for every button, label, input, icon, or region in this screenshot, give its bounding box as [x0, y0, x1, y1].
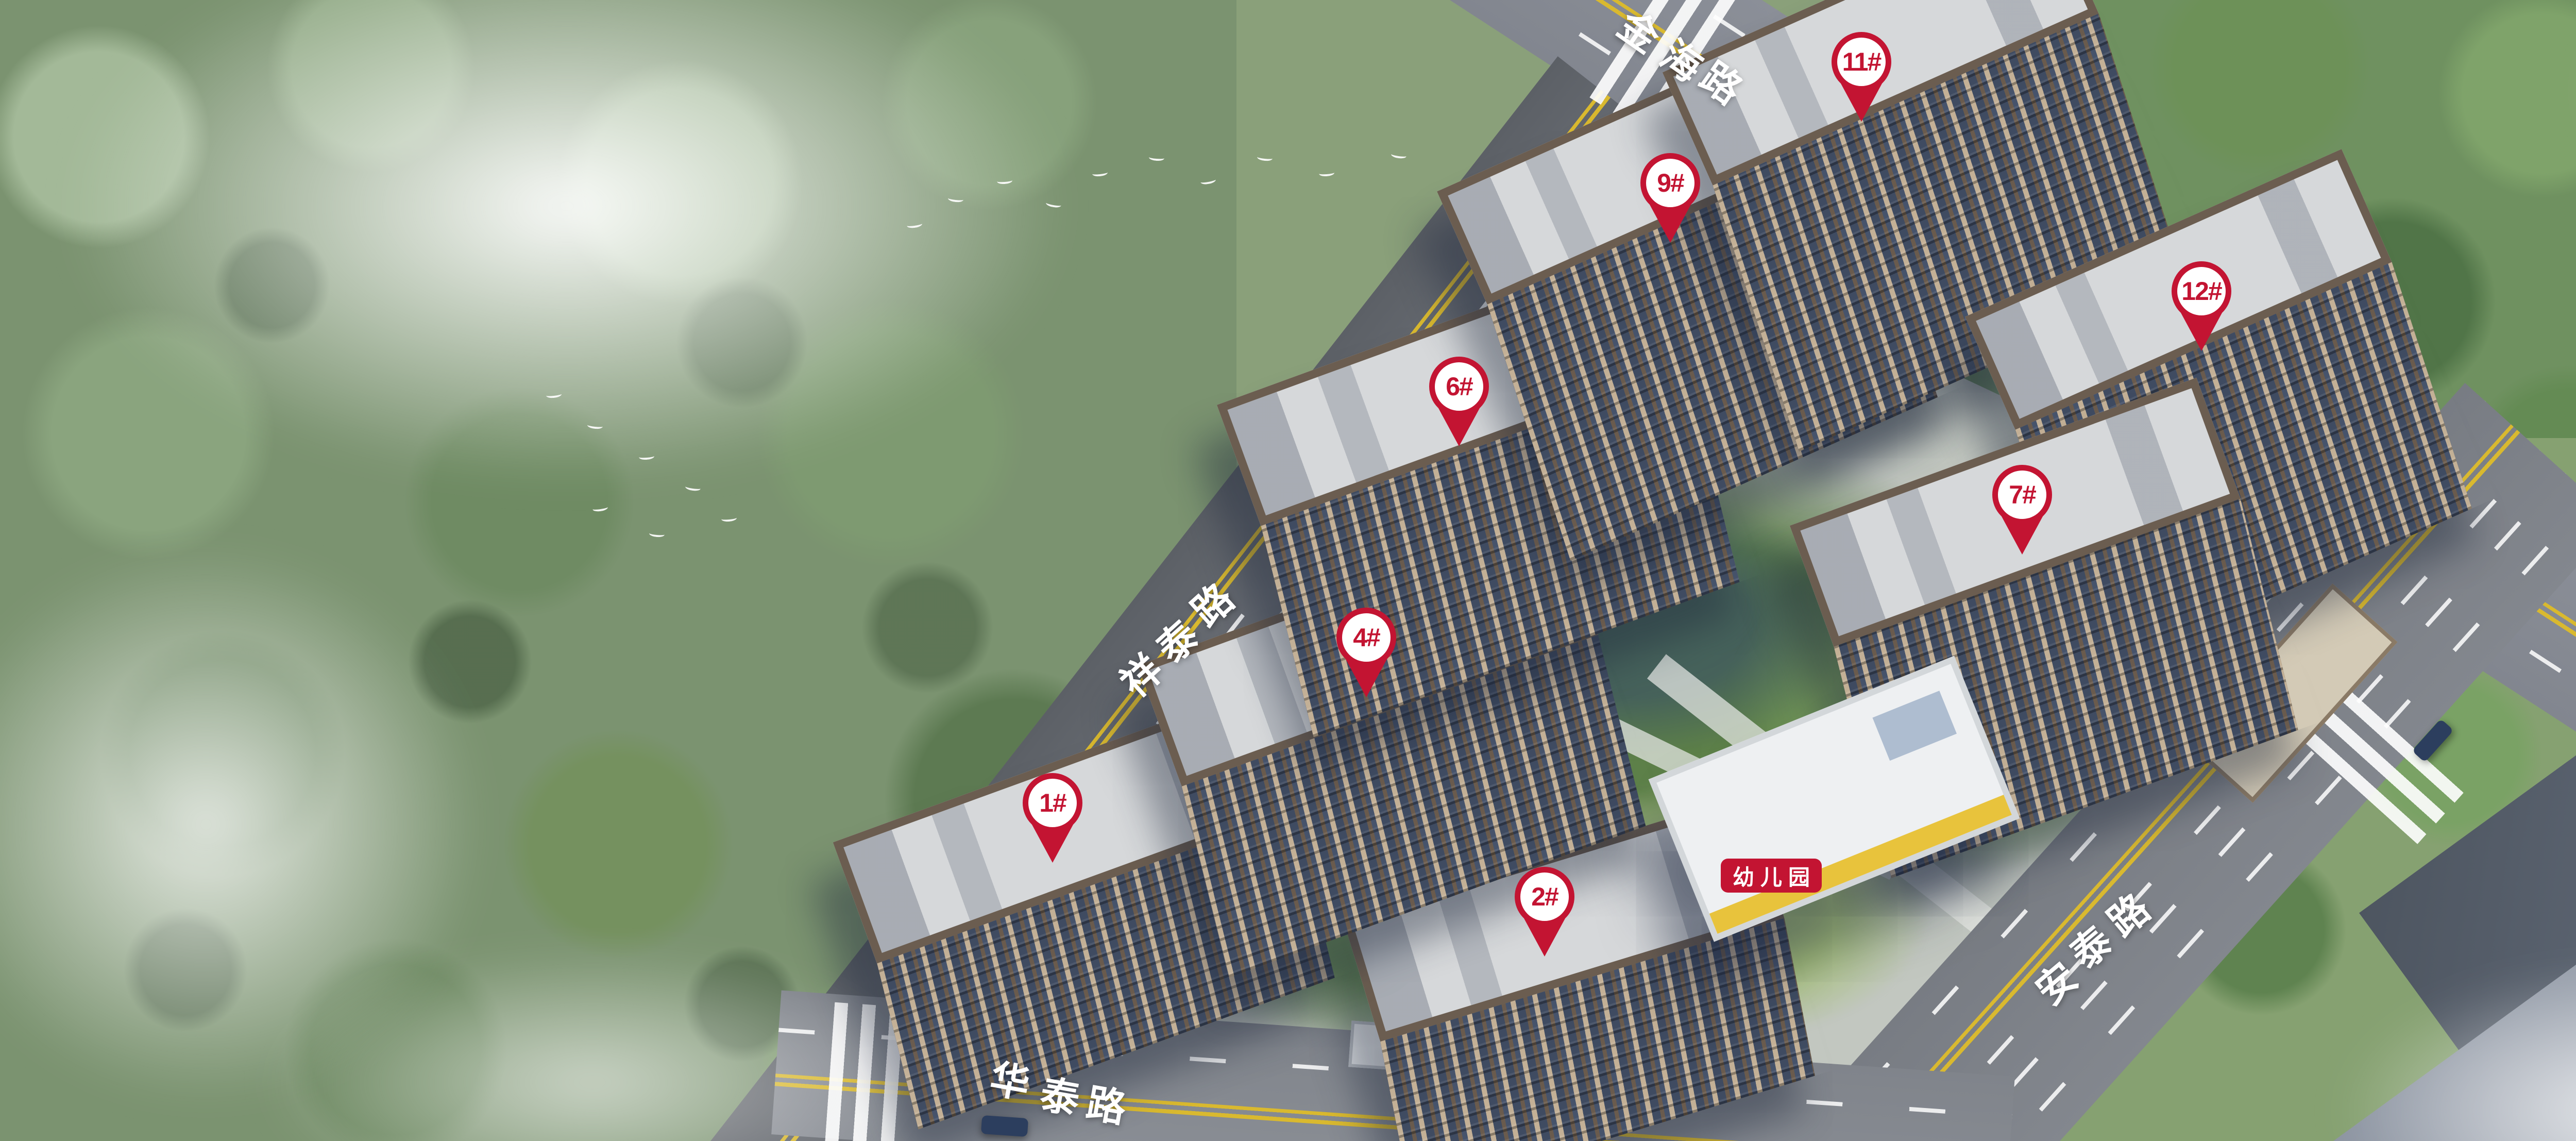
- car: [981, 1115, 1028, 1137]
- road-name-华泰路: 路: [1077, 1078, 1134, 1135]
- kindergarten-badge: 幼儿园: [1721, 859, 1822, 893]
- bird-icon: [1391, 151, 1406, 159]
- marker-label: 7#: [2009, 482, 2036, 508]
- marker-pin-head-icon: 6#: [1429, 357, 1489, 416]
- marker-pin-head-icon: 12#: [2172, 261, 2231, 321]
- marker-pin-head-icon: 9#: [1640, 153, 1700, 213]
- marker-pin-head-icon: 7#: [1992, 465, 2052, 525]
- marker-label: 1#: [1039, 790, 1066, 816]
- building-marker-1[interactable]: 1#: [1023, 773, 1082, 866]
- road-name-华泰路: 华: [981, 1053, 1038, 1111]
- marker-label: 4#: [1353, 625, 1380, 650]
- marker-pin-head-icon: 11#: [1832, 32, 1891, 92]
- marker-pin-head-icon: 1#: [1023, 773, 1082, 833]
- aerial-rendering: 金海路祥泰路安泰路华泰路 1# 2# 4# 6# 7# 9# 11#: [0, 0, 2576, 1141]
- marker-label: 9#: [1657, 170, 1684, 196]
- building-marker-9[interactable]: 9#: [1640, 153, 1700, 246]
- building-marker-7[interactable]: 7#: [1992, 465, 2052, 558]
- marker-label: 12#: [2181, 278, 2221, 304]
- bird-icon: [1319, 170, 1335, 177]
- marker-label: 2#: [1531, 884, 1558, 910]
- bird-icon: [1257, 154, 1273, 161]
- building-marker-11[interactable]: 11#: [1832, 32, 1891, 125]
- building-marker-2[interactable]: 2#: [1515, 867, 1574, 960]
- building-marker-6[interactable]: 6#: [1429, 357, 1489, 449]
- building-marker-12[interactable]: 12#: [2172, 261, 2231, 354]
- marker-pin-head-icon: 4#: [1336, 608, 1396, 667]
- kindergarten-roof-detail: [1872, 691, 1957, 761]
- marker-label: 11#: [1842, 49, 1881, 75]
- marker-label: 6#: [1446, 374, 1472, 399]
- building-marker-4[interactable]: 4#: [1336, 608, 1396, 700]
- marker-pin-head-icon: 2#: [1515, 867, 1574, 927]
